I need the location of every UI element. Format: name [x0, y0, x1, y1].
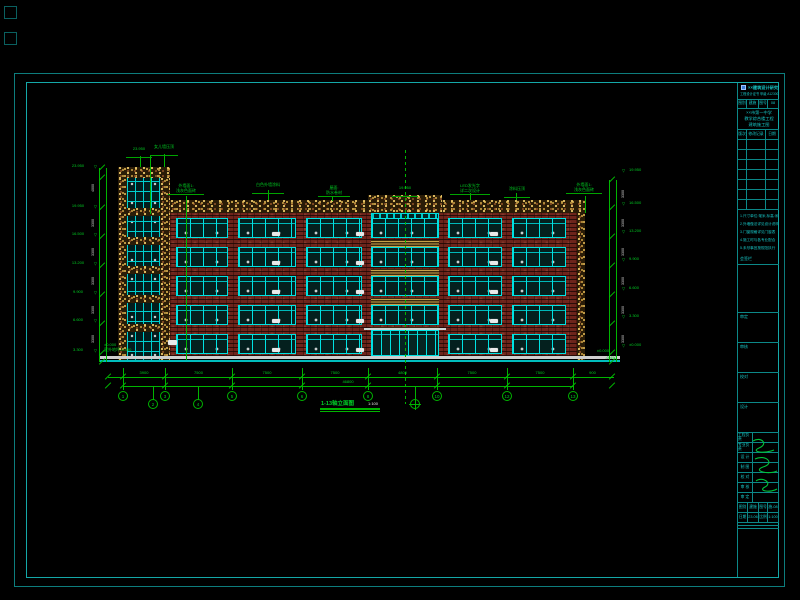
window-band	[238, 305, 296, 325]
revision-cell	[766, 180, 779, 190]
tower-pier-left	[118, 178, 127, 362]
ground-level-note: ±0.000室外地坪-0.450	[104, 343, 138, 353]
revision-cell	[738, 190, 747, 200]
dim-chain-line	[616, 180, 617, 362]
level-mark-left: 19.950▽	[66, 204, 98, 210]
dim-value-vertical: 3300	[622, 217, 626, 229]
benchmark-symbol	[410, 399, 420, 409]
level-value: 19.950	[66, 204, 90, 209]
titleblock-bottom-line2	[738, 528, 779, 529]
title-block: ××建筑设计研究院有限公司工程设计证书 甲级 A123004567图别建施图号0…	[737, 83, 779, 577]
sign-area-label: 会签栏	[740, 256, 760, 262]
roof-callout: 屋面:防水卷材	[318, 186, 350, 197]
revision-cell	[747, 200, 766, 210]
window-band	[176, 305, 228, 325]
header-cell: 建施	[747, 100, 759, 108]
level-symbol: ▽	[91, 204, 97, 209]
level-value: 16.500	[629, 201, 655, 206]
revision-cell	[738, 200, 747, 210]
roof-callout: 19.950	[392, 186, 418, 197]
drawing-title: 1-13轴立面图	[321, 399, 367, 407]
level-symbol: ▽	[91, 261, 97, 266]
roof-callout: LED发光字详二次设计	[450, 184, 490, 195]
revision-cell: 版次	[738, 130, 747, 140]
level-mark-left: 16.500▽	[66, 232, 98, 238]
dim-value-vertical: 3300	[622, 304, 626, 316]
roof-callout: 外墙面1:浅灰色面砖	[566, 183, 602, 194]
header-cell: 图号	[759, 100, 768, 108]
revision-cell	[747, 150, 766, 160]
revision-cell	[747, 190, 766, 200]
info-cell: 图别	[738, 503, 748, 513]
ground-line-cyan	[100, 360, 620, 362]
level-symbol: ▽	[91, 348, 97, 353]
level-value: 3.300	[66, 348, 90, 353]
level-mark-left: 23.950▽	[66, 164, 98, 170]
revision-cell	[766, 160, 779, 170]
titleblock-divider	[738, 312, 779, 313]
callout-text: 浅灰色面砖	[566, 188, 602, 193]
level-mark-right: ▽±0.000	[622, 343, 656, 349]
info-cell: 日期	[738, 513, 748, 523]
axis-stub-line	[232, 368, 233, 390]
leader-line	[150, 156, 151, 214]
project-line: 建筑施工图	[740, 122, 778, 128]
stage-box-label: 审核	[740, 344, 760, 350]
note-line: 室外地坪-0.450	[104, 348, 138, 353]
corner-marker	[4, 6, 17, 19]
window-band	[238, 247, 296, 267]
window-tag	[272, 261, 280, 265]
dim-value-vertical: 3300	[622, 188, 626, 200]
level-symbol: ▽	[91, 164, 97, 169]
window-band	[512, 334, 566, 354]
axis-bubble: 13	[568, 391, 578, 401]
revision-cell: 修改记录	[747, 130, 766, 140]
axis-bubble: 5	[227, 391, 237, 401]
level-value: 3.300	[629, 314, 655, 319]
revision-cell	[766, 150, 779, 160]
level-symbol: ▽	[91, 290, 97, 295]
axis-stub-line	[368, 368, 369, 390]
benchmark-cross-v	[415, 398, 416, 410]
dim-value: 7500	[462, 371, 482, 376]
axis-bubble: 10	[432, 391, 442, 401]
callout-text: 防水卷材	[318, 191, 350, 196]
axis-bubble: 6	[297, 391, 307, 401]
axis-bubble: 12	[502, 391, 512, 401]
dim-value-vertical: 3300	[92, 333, 96, 345]
callout-text: 详二次设计	[450, 189, 490, 194]
window-band	[176, 276, 228, 296]
revision-cell	[738, 170, 747, 180]
window-tag	[272, 319, 280, 323]
window-band	[306, 334, 362, 354]
signature-scribble	[747, 435, 781, 495]
titleblock-divider	[738, 342, 779, 343]
window-band	[512, 218, 566, 238]
tower-spandrel	[127, 237, 160, 245]
window-band	[176, 218, 228, 238]
tower-callout: 23.950	[126, 147, 152, 158]
company-logo-icon	[741, 85, 746, 90]
revision-cell	[738, 140, 747, 150]
window-tag	[490, 261, 498, 265]
revision-table: 版次修改记录日期	[738, 130, 779, 210]
title-underline	[320, 408, 380, 410]
callout-text	[504, 192, 530, 197]
level-mark-right: ▽3.300	[622, 314, 656, 320]
window-tag	[490, 290, 498, 294]
level-mark-left: 3.300▽	[66, 348, 98, 354]
level-value: ±0.000	[629, 343, 655, 348]
stage-box-label: 审定	[740, 314, 760, 320]
info-cell: 1:100	[768, 513, 779, 523]
window-band	[176, 334, 228, 354]
note-line: 2.外墙做法详见设计说明	[740, 222, 778, 229]
window-tag	[490, 232, 498, 236]
axis-stub-line	[165, 368, 166, 390]
cert-line: 工程设计证书 甲级 A123004567	[740, 92, 778, 97]
level-value: 16.500	[66, 232, 90, 237]
window-tag	[490, 348, 498, 352]
window-band	[512, 276, 566, 296]
info-cell: 图号	[759, 503, 768, 513]
level-value: 13.200	[66, 261, 90, 266]
info-cell: 比例	[759, 513, 768, 523]
header-cell: 08	[768, 100, 779, 108]
revision-cell	[747, 170, 766, 180]
level-mark-right: ▽6.600	[622, 286, 656, 292]
window-band	[306, 276, 362, 296]
level-symbol: ▽	[622, 201, 628, 206]
window-tag	[272, 290, 280, 294]
note-line: 4.施工时与各专业配合	[740, 238, 778, 245]
revision-cell	[766, 140, 779, 150]
axis-stub-line	[573, 368, 574, 390]
axis-sub-leader	[198, 386, 199, 400]
axis-sub-bubble: 4	[193, 399, 203, 409]
ground-level-mark-right: ±0.000	[592, 349, 614, 354]
titleblock-divider	[738, 108, 779, 109]
revision-cell	[747, 180, 766, 190]
tower-spandrel	[127, 324, 160, 332]
dim-value-overall: 46800	[336, 380, 360, 385]
window-band	[176, 247, 228, 267]
tower-spandrel	[127, 266, 160, 274]
callout-text	[252, 188, 284, 193]
dim-line-bays	[108, 377, 614, 378]
leader-line	[186, 196, 187, 360]
window-tag	[356, 319, 364, 323]
window-tag	[356, 232, 364, 236]
window-band	[238, 276, 296, 296]
leader-line	[585, 196, 586, 213]
roof-callout: 涂料压顶	[504, 187, 530, 198]
window-tag	[168, 340, 177, 345]
roof-callout: 外墙面1:浅灰色面砖	[168, 184, 204, 195]
dim-value: 7500	[325, 371, 345, 376]
revision-cell	[738, 160, 747, 170]
dim-value-vertical: 3300	[622, 275, 626, 287]
window-band	[512, 305, 566, 325]
tower-callout: 女儿墙压顶	[150, 145, 178, 156]
dim-value: 4800	[393, 371, 413, 376]
window-band	[238, 218, 296, 238]
tower-spandrel	[127, 208, 160, 216]
revision-cell	[738, 150, 747, 160]
window-tag	[356, 348, 364, 352]
callout-text: 浅灰色面砖	[168, 189, 204, 194]
dim-chain-line	[106, 168, 107, 362]
level-mark-right: ▽19.950	[622, 168, 656, 174]
level-mark-left: 13.200▽	[66, 261, 98, 267]
level-value: 6.600	[629, 286, 655, 291]
level-symbol: ▽	[622, 168, 628, 173]
window-tag	[356, 261, 364, 265]
revision-cell: 日期	[766, 130, 779, 140]
level-mark-right: ▽13.200	[622, 229, 656, 235]
drawing-scale: 1:100	[368, 401, 384, 407]
titleblock-divider	[738, 264, 779, 265]
level-symbol: ▽	[91, 232, 97, 237]
window-tag	[272, 232, 280, 236]
window-band	[306, 218, 362, 238]
window-tag	[272, 348, 280, 352]
level-value: 13.200	[629, 229, 655, 234]
level-symbol: ▽	[622, 229, 628, 234]
level-mark-left: 9.900▽	[66, 290, 98, 296]
revision-cell	[766, 200, 779, 210]
tower-top-band	[118, 167, 170, 178]
level-value: 9.900	[66, 290, 90, 295]
window-band	[238, 334, 296, 354]
revision-cell	[738, 180, 747, 190]
dim-value-vertical: 3300	[92, 246, 96, 258]
company-name: ××建筑设计研究院有限公司	[748, 85, 779, 91]
title-underline-thin	[320, 411, 380, 412]
note-line: 3.门窗规格详见门窗表	[740, 230, 778, 237]
callout-text	[392, 191, 418, 196]
revision-cell	[747, 160, 766, 170]
titleblock-divider	[738, 402, 779, 403]
tower-pier-right	[160, 178, 170, 362]
level-symbol: ▽	[91, 318, 97, 323]
info-cell: 施-08	[768, 503, 779, 513]
dim-value-vertical: 3300	[92, 217, 96, 229]
axis-sub-bubble: 2	[148, 399, 158, 409]
dim-value: 900	[583, 371, 603, 376]
dim-value: 7500	[530, 371, 550, 376]
dim-value-vertical: 3300	[622, 246, 626, 258]
axis-stub-line	[507, 368, 508, 390]
window-tag	[490, 319, 498, 323]
ground-line-white	[100, 356, 620, 359]
tower-spandrel	[127, 295, 160, 303]
stage-box-label: 校对	[740, 374, 760, 380]
axis-bubble: 1	[118, 391, 128, 401]
corner-marker	[4, 32, 17, 45]
window-band	[306, 305, 362, 325]
callout-text	[126, 152, 152, 157]
window-band	[512, 247, 566, 267]
dim-value: 7500	[257, 371, 277, 376]
dim-value: 7500	[189, 371, 209, 376]
note-line: 1.尺寸单位:毫米,标高:米	[740, 214, 778, 221]
right-edge-band	[577, 213, 585, 362]
level-mark-right: ▽16.500	[622, 201, 656, 207]
level-value: 6.600	[66, 318, 90, 323]
level-value: 23.950	[66, 164, 90, 169]
level-value: 9.900	[629, 257, 655, 262]
revision-cell	[766, 190, 779, 200]
level-mark-right: ▽9.900	[622, 257, 656, 263]
axis-bubble: 3	[160, 391, 170, 401]
dim-value: 3900	[134, 371, 154, 376]
titleblock-divider	[738, 372, 779, 373]
window-tag	[356, 290, 364, 294]
revision-cell	[747, 140, 766, 150]
level-value: 19.950	[629, 168, 655, 173]
dim-value-vertical: 3300	[92, 304, 96, 316]
dim-value-vertical: 3300	[622, 333, 626, 345]
header-cell: 图别	[738, 100, 747, 108]
window-band	[306, 247, 362, 267]
dim-value-vertical: 4000	[92, 182, 96, 194]
cad-elevation-sheet: 23.950女儿墙压顶外墙面1:浅灰色面砖白色外墙涂料屋面:防水卷材19.950…	[0, 0, 800, 600]
ground-level-mark-right: -0.450	[600, 356, 622, 361]
info-cell: 23.06	[748, 513, 759, 523]
axis-stub-line	[302, 368, 303, 390]
roof-callout: 白色外墙涂料	[252, 183, 284, 194]
revision-cell	[766, 170, 779, 180]
titleblock-bottom-line	[738, 525, 779, 526]
axis-stub-line	[437, 368, 438, 390]
note-line: 5.未尽事宜按规范执行	[740, 246, 778, 253]
callout-text	[150, 150, 178, 155]
level-mark-left: 6.600▽	[66, 318, 98, 324]
info-cell: 建施	[748, 503, 759, 513]
axis-stub-line	[123, 368, 124, 390]
axis-sub-leader	[153, 386, 154, 400]
stage-box-label: 设计	[740, 404, 760, 410]
dim-value-vertical: 3300	[92, 275, 96, 287]
